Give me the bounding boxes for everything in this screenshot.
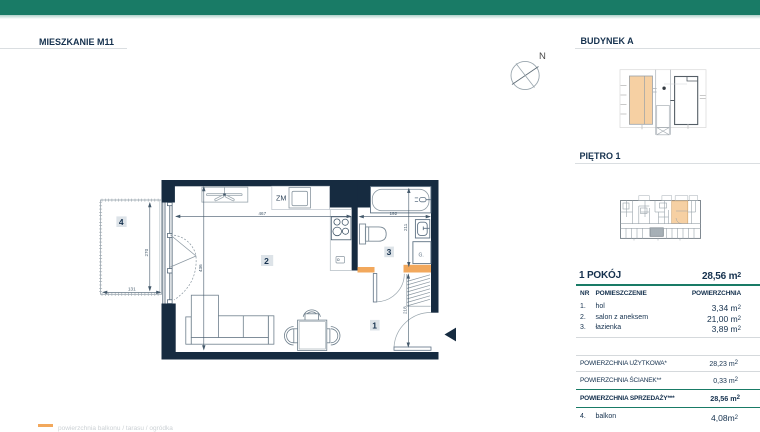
svg-text:G.: G. [419, 252, 424, 258]
svg-text:N: N [539, 51, 546, 62]
svg-text:192: 192 [390, 211, 398, 216]
svg-text:211: 211 [403, 223, 408, 231]
svg-text:131: 131 [128, 287, 136, 292]
svg-text:ZM: ZM [276, 194, 286, 203]
svg-text:4: 4 [119, 217, 124, 227]
svg-text:1: 1 [372, 321, 377, 331]
svg-text:436: 436 [198, 264, 203, 272]
svg-text:218: 218 [403, 306, 408, 314]
svg-text:270: 270 [144, 248, 149, 256]
svg-text:3: 3 [387, 247, 392, 257]
svg-text:467: 467 [259, 211, 267, 216]
svg-text:2: 2 [264, 256, 269, 266]
